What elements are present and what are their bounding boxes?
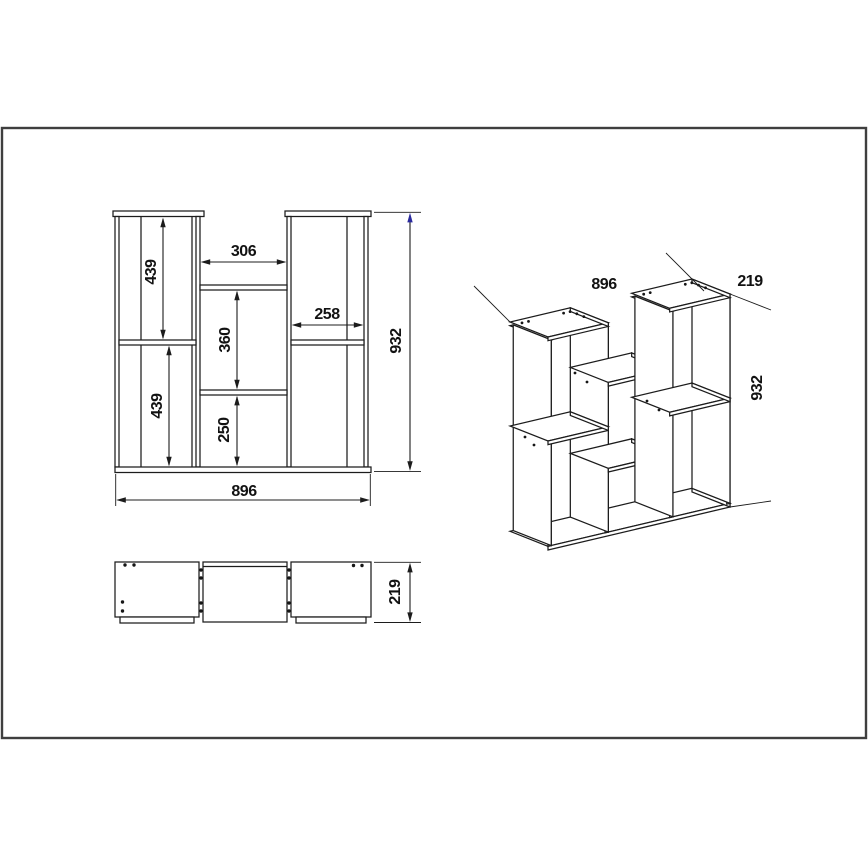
front-dimensions: 439 439 306 360 250 258 [116,212,421,506]
drawing-border [2,128,866,738]
dim-arrow [201,259,211,264]
middle-top-shelf [200,285,287,290]
top-view-right-plinth [296,617,366,623]
dim-label-932-iso: 932 [749,375,766,401]
dim-label-896-iso: 896 [591,276,617,293]
dim-label-219-top: 219 [387,579,404,605]
dim-label-896-front: 896 [231,483,257,500]
iso-leader-depth [730,294,771,310]
dim-arrow [166,346,171,356]
dim-arrow [354,322,364,327]
dim-arrow [234,380,239,390]
dim-arrow [292,322,302,327]
top-view: 219 [115,562,421,623]
isometric-view: 896 219 932 [474,253,771,550]
dim-arrow [234,396,239,406]
dim-arrow [160,218,165,228]
top-dimensions: 219 [374,562,421,622]
technical-drawing: 439 439 306 360 250 258 [0,0,868,868]
left-tower-top-cap [113,211,204,217]
right-tower-top-cap [285,211,371,217]
middle-mid-shelf [200,390,287,395]
dim-arrow [407,612,412,622]
dim-arrow [160,330,165,340]
top-structure [115,562,371,623]
dim-label-250: 250 [216,417,233,443]
dim-arrow [407,461,412,471]
dim-arrow [116,497,126,502]
iso-leader-left [474,286,510,322]
dim-label-258: 258 [314,306,340,323]
drawing-sheet: 439 439 306 360 250 258 [0,0,868,868]
bottom-board [115,467,371,473]
dim-label-306: 306 [231,243,257,260]
top-view-right-block [291,562,371,617]
iso-leader-bottom [730,501,771,507]
iso-structure [510,279,730,550]
dim-arrow [277,259,287,264]
dim-label-360: 360 [217,327,234,353]
top-view-left-block [115,562,199,617]
right-tower-mid-shelf [291,340,364,345]
left-tower-mid-shelf [119,340,196,345]
front-view: 439 439 306 360 250 258 [113,211,421,506]
top-view-middle-block [203,562,287,622]
dim-label-932-front: 932 [388,328,405,354]
dim-label-439-lower: 439 [149,393,166,419]
dim-arrow [234,457,239,467]
dim-label-439-upper: 439 [143,259,160,285]
top-view-left-plinth [120,617,194,623]
dim-arrow [166,457,171,467]
dim-arrow [234,291,239,301]
dim-arrow [360,497,370,502]
dim-label-219-iso: 219 [737,273,763,290]
dim-arrow [407,563,412,573]
dim-arrow-blue [407,213,412,223]
